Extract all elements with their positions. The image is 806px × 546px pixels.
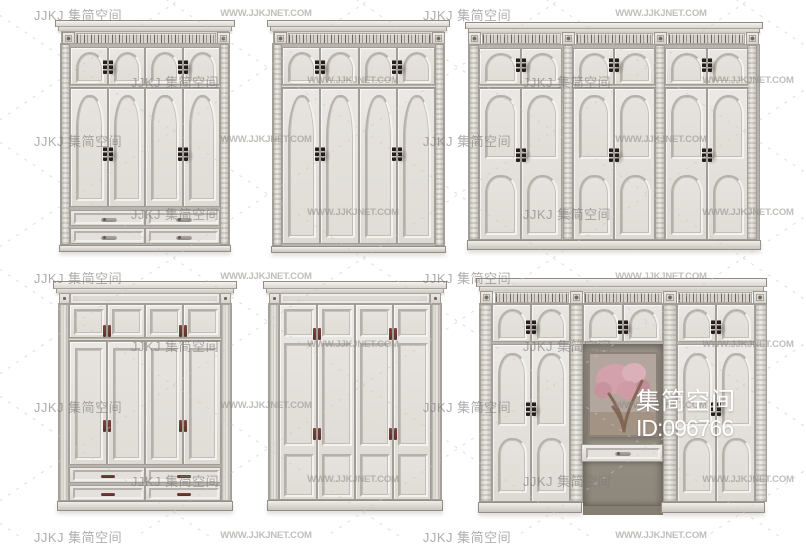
wardrobe-door	[355, 304, 393, 500]
wardrobe-door	[573, 88, 614, 240]
door-hinge-handle-icon	[516, 148, 526, 162]
drawer	[145, 228, 220, 244]
door-panel	[579, 53, 610, 83]
door-panel	[485, 175, 517, 235]
wardrobe-plain-four-door	[263, 281, 447, 511]
handle-bar	[389, 428, 392, 440]
frieze-corner-block	[480, 291, 493, 304]
pilaster	[469, 45, 479, 240]
pilaster	[59, 304, 69, 501]
handle-bar	[179, 325, 182, 337]
door-panel	[671, 175, 703, 235]
site-watermark: WWW.JJKJNET.COM	[220, 530, 311, 541]
door-panel	[360, 454, 390, 497]
carved-band	[678, 292, 752, 303]
pilaster	[563, 45, 573, 240]
door-panel	[713, 175, 745, 235]
hinge-bar	[109, 147, 113, 161]
door-hinge-handle-icon	[315, 147, 325, 161]
pilaster	[655, 45, 665, 240]
plinth	[59, 245, 231, 252]
pilaster	[570, 304, 583, 502]
door-hinge-handle-icon	[516, 58, 526, 72]
hinge-bar	[532, 320, 536, 334]
drawer-handle-icon	[177, 493, 191, 496]
wardrobe-door	[183, 304, 221, 338]
door-panel	[112, 309, 142, 335]
hinge-bar	[615, 148, 619, 162]
hinge-bar	[624, 320, 628, 334]
door-panel	[322, 343, 352, 446]
frieze-panel	[70, 293, 220, 304]
door-panel	[322, 309, 352, 337]
door-panel	[284, 343, 314, 446]
handle-bar	[318, 428, 321, 440]
hinge-bar	[321, 147, 325, 161]
door-handle-icon	[179, 420, 188, 432]
door-panel	[398, 309, 428, 337]
hinge-bar	[392, 147, 396, 161]
door-handle-icon	[103, 325, 112, 337]
door-hinge-handle-icon	[178, 147, 188, 161]
brand-id-overlay: 集简空间 ID:096766	[636, 388, 736, 441]
cornice-step	[479, 287, 764, 291]
door-handle-icon	[179, 325, 188, 337]
hinge-bar	[532, 402, 536, 416]
carved-band	[576, 33, 653, 44]
hinge-bar	[398, 147, 402, 161]
door-panel	[589, 309, 619, 340]
site-watermark: WWW.JJKJNET.COM	[615, 530, 706, 541]
pilaster	[480, 304, 492, 502]
plinth	[57, 501, 233, 511]
door-panel	[365, 95, 393, 238]
door-hinge-handle-icon	[315, 60, 325, 74]
wardrobe-door	[69, 304, 107, 338]
drawer-handle-icon	[101, 217, 117, 222]
cornice	[267, 20, 450, 27]
hinge-bar	[178, 60, 182, 74]
door-panel	[398, 343, 428, 446]
frieze-corner-block	[562, 32, 575, 45]
plinth	[478, 502, 582, 513]
wardrobe-door	[573, 48, 614, 85]
door-hinge-handle-icon	[103, 147, 113, 161]
door-panel	[398, 454, 428, 497]
frieze-rosette-block	[59, 293, 70, 304]
hinge-bar	[526, 320, 530, 334]
door-panel	[498, 353, 527, 426]
frieze-panel	[280, 293, 430, 304]
handle-bar	[103, 325, 106, 337]
wardrobe-door	[665, 48, 707, 85]
wardrobe-door	[531, 344, 570, 502]
wardrobe-four-door	[267, 20, 450, 253]
brand-text: 集简空间	[636, 388, 736, 416]
drawer-handle-icon	[101, 235, 117, 240]
door-panel	[722, 438, 751, 493]
door-hinge-handle-icon	[609, 148, 619, 162]
hinge-bar	[702, 148, 706, 162]
wardrobe-door	[183, 341, 221, 465]
door-hinge-handle-icon	[609, 58, 619, 72]
door-panel	[76, 52, 104, 83]
door-panel	[189, 348, 217, 460]
door-panel	[75, 348, 103, 460]
cornice	[53, 281, 237, 289]
handle-bar	[389, 328, 392, 340]
hinge-bar	[516, 148, 520, 162]
door-hinge-handle-icon	[618, 320, 628, 334]
door-panel	[284, 454, 314, 497]
door-handle-icon	[103, 420, 112, 432]
frieze	[273, 31, 444, 44]
handle-bar	[394, 428, 397, 440]
door-panel	[360, 309, 390, 337]
door-panel	[683, 438, 712, 493]
wardrobe-door	[479, 48, 521, 85]
cornice	[263, 281, 447, 289]
plinth	[467, 240, 761, 250]
door-hinge-handle-icon	[392, 147, 402, 161]
door-panel	[284, 309, 314, 337]
hinge-bar	[717, 320, 721, 334]
hinge-bar	[184, 147, 188, 161]
door-panel	[113, 348, 141, 460]
handle-bar	[184, 325, 187, 337]
plinth	[661, 502, 765, 513]
wardrobe-door	[492, 344, 531, 502]
handle-bar	[313, 428, 316, 440]
door-hinge-handle-icon	[711, 320, 721, 334]
hinge-bar	[398, 60, 402, 74]
wardrobe-door	[359, 88, 397, 244]
hinge-bar	[618, 320, 622, 334]
wardrobe-door	[282, 88, 320, 244]
product-collage: JJKJ 集简空间WWW.JJKJNET.COMJJKJ 集简空间WWW.JJK…	[0, 0, 806, 537]
pilaster	[273, 44, 282, 246]
hinge-bar	[315, 147, 319, 161]
door-panel	[485, 53, 517, 83]
drawer-handle-icon	[101, 493, 115, 496]
hinge-bar	[315, 60, 319, 74]
door-panel	[150, 309, 180, 335]
pilaster	[431, 304, 441, 500]
frieze-rosette-block	[430, 293, 441, 304]
handle-bar	[313, 328, 316, 340]
door-hinge-handle-icon	[702, 58, 712, 72]
hinge-bar	[708, 58, 712, 72]
drawer	[145, 467, 221, 483]
door-panel	[151, 52, 179, 83]
handle-bar	[108, 420, 111, 432]
handle-bar	[318, 328, 321, 340]
door-panel	[360, 343, 390, 446]
wardrobe-six-door-wide	[465, 22, 763, 250]
wardrobe-door	[397, 88, 435, 244]
site-watermark: WWW.JJKJNET.COM	[615, 8, 706, 19]
carved-band	[482, 33, 561, 44]
pilaster	[220, 44, 229, 245]
carved-band	[584, 292, 662, 303]
door-panel	[322, 454, 352, 497]
carved-band	[495, 292, 569, 303]
cornice	[465, 22, 763, 29]
wardrobe-door	[145, 304, 183, 338]
door-hinge-handle-icon	[526, 320, 536, 334]
hinge-bar	[109, 60, 113, 74]
niche-base	[583, 505, 663, 515]
site-watermark: WWW.JJKJNET.COM	[220, 8, 311, 19]
door-panel	[683, 309, 712, 340]
door-panel	[403, 95, 431, 238]
wardrobe-door	[279, 304, 317, 500]
door-panel	[579, 95, 610, 159]
frieze-corner-block	[746, 32, 759, 45]
drawer	[69, 467, 145, 483]
pilaster	[221, 304, 231, 501]
plinth	[267, 500, 443, 511]
cornice	[55, 20, 235, 27]
handle-bar	[179, 420, 182, 432]
door-handle-icon	[313, 428, 322, 440]
door-panel	[671, 53, 703, 83]
hinge-bar	[103, 60, 107, 74]
door-panel	[527, 175, 559, 235]
hinge-bar	[615, 58, 619, 72]
door-panel	[151, 95, 179, 201]
drawer-handle-icon	[177, 475, 191, 478]
hinge-bar	[321, 60, 325, 74]
handle-bar	[108, 325, 111, 337]
drawer-handle-icon	[101, 475, 115, 478]
cornice	[476, 278, 767, 287]
frieze-rosette-block	[220, 293, 231, 304]
door-panel	[151, 348, 179, 460]
door-hinge-handle-icon	[178, 60, 188, 74]
hinge-bar	[522, 58, 526, 72]
hinge-bar	[609, 58, 613, 72]
drawer-handle-icon	[615, 451, 631, 456]
wardrobe-door	[583, 304, 623, 342]
wardrobe-four-door-with-drawers	[55, 20, 235, 252]
wardrobe-door	[479, 88, 521, 240]
door-panel	[485, 95, 517, 159]
drawer	[145, 210, 220, 226]
wardrobe-door	[145, 341, 183, 465]
door-panel	[288, 95, 316, 238]
hinge-bar	[103, 147, 107, 161]
drawer	[69, 485, 145, 501]
door-handle-icon	[389, 428, 398, 440]
door-panel	[365, 52, 393, 83]
door-panel	[74, 309, 104, 335]
wardrobe-door	[393, 304, 431, 500]
door-panel	[76, 95, 104, 201]
door-panel	[188, 309, 218, 335]
door-hinge-handle-icon	[702, 148, 712, 162]
hinge-bar	[522, 148, 526, 162]
pilaster	[269, 304, 279, 500]
frieze-rosette-block	[269, 293, 280, 304]
wardrobe-door	[665, 88, 707, 240]
kneehole-shade	[583, 462, 663, 505]
door-panel	[579, 175, 610, 235]
door-panel	[326, 95, 354, 238]
drawer-handle-icon	[176, 235, 192, 240]
carved-band	[668, 33, 745, 44]
door-panel	[671, 95, 703, 159]
carved-band	[288, 33, 431, 44]
product-id-text: ID:096766	[636, 416, 736, 441]
frieze-corner-block	[570, 291, 583, 304]
wardrobe-door	[107, 341, 145, 465]
door-panel	[498, 438, 527, 493]
drawer-handle-icon	[176, 217, 192, 222]
door-hinge-handle-icon	[526, 402, 536, 416]
carved-band	[76, 33, 216, 44]
door-panel	[288, 52, 316, 83]
wardrobe-plain-four-door-with-drawers	[53, 281, 237, 511]
door-panel	[537, 438, 566, 493]
hinge-bar	[184, 60, 188, 74]
handle-bar	[394, 328, 397, 340]
frieze-corner-block	[654, 32, 667, 45]
door-panel	[620, 175, 651, 235]
pilaster	[755, 304, 767, 502]
hinge-bar	[711, 320, 715, 334]
pilaster	[61, 44, 70, 245]
frieze-corner-block	[663, 291, 677, 304]
hinge-bar	[708, 148, 712, 162]
wardrobe-door	[317, 304, 355, 500]
wardrobe-door	[69, 341, 107, 465]
wardrobe-door	[320, 88, 358, 244]
frieze	[61, 31, 229, 44]
hinge-bar	[392, 60, 396, 74]
frieze-corner-block	[753, 291, 767, 304]
door-hinge-handle-icon	[392, 60, 402, 74]
wardrobe-door	[107, 304, 145, 338]
frieze-corner-block	[468, 32, 481, 45]
dresser-drawer	[581, 444, 663, 462]
door-handle-icon	[313, 328, 322, 340]
hinge-bar	[526, 402, 530, 416]
handle-bar	[184, 420, 187, 432]
drawer	[70, 228, 145, 244]
door-handle-icon	[389, 328, 398, 340]
hinge-bar	[178, 147, 182, 161]
hinge-bar	[516, 58, 520, 72]
pilaster	[435, 44, 444, 246]
drawer	[70, 210, 145, 226]
door-hinge-handle-icon	[103, 60, 113, 74]
hinge-bar	[702, 58, 706, 72]
door-panel	[498, 309, 527, 340]
pilaster	[747, 45, 757, 240]
hinge-bar	[609, 148, 613, 162]
plinth	[271, 246, 446, 253]
drawer	[145, 485, 221, 501]
handle-bar	[103, 420, 106, 432]
